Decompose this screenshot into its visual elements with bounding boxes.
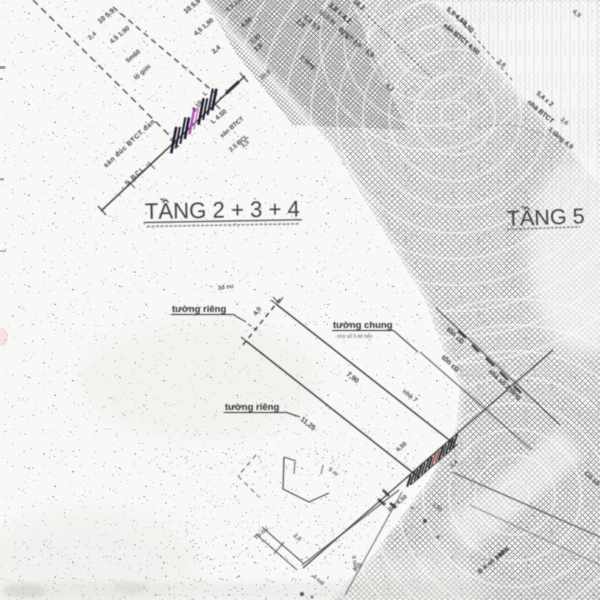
svg-text:nhà số 5 kế bên: nhà số 5 kế bên <box>337 334 373 340</box>
svg-text:tường chung: tường chung <box>333 320 393 331</box>
svg-text:tường riêng: tường riêng <box>225 402 279 413</box>
svg-text:tường riêng: tường riêng <box>172 304 226 315</box>
